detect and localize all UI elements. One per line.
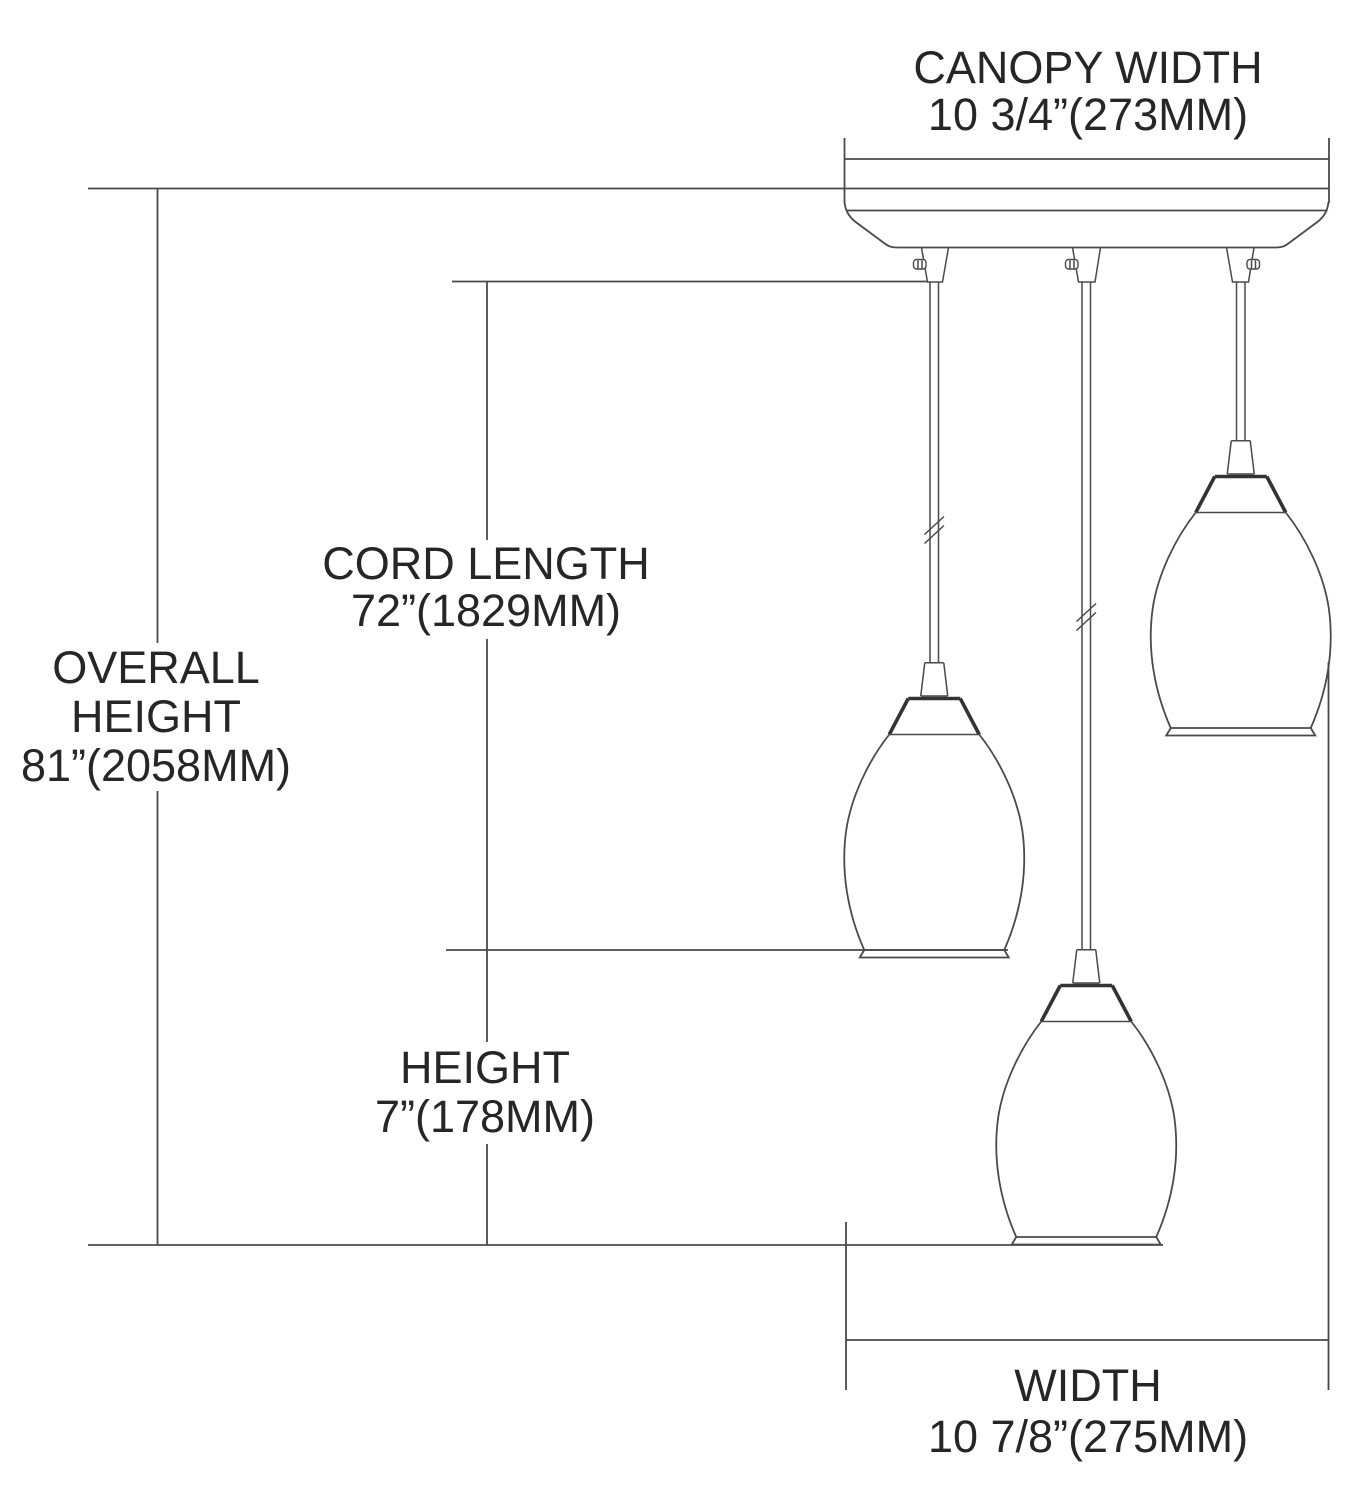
shade-height-title: HEIGHT: [375, 1043, 595, 1092]
cord-break-icon: [925, 517, 945, 544]
canopy-connector-left: [914, 248, 949, 283]
shade-center: [996, 950, 1176, 1245]
canopy-width-title: CANOPY WIDTH: [913, 44, 1262, 91]
cord-right: [1237, 282, 1246, 440]
width-value: 10 7/8”(275MM): [928, 1411, 1248, 1462]
dimension-diagram: CANOPY WIDTH 10 3/4”(273MM) OVERALL HEIG…: [0, 0, 1361, 1500]
shade-left: [844, 663, 1024, 958]
overall-height-value: 81”(2058MM): [21, 741, 291, 790]
shade-height-value: 7”(178MM): [375, 1092, 595, 1141]
cord-center: [1077, 282, 1097, 949]
width-label: WIDTH 10 7/8”(275MM): [922, 1360, 1254, 1462]
canopy-connector-right: [1227, 248, 1260, 283]
canopy-width-label: CANOPY WIDTH 10 3/4”(273MM): [907, 44, 1268, 138]
cord-length-label: CORD LENGTH 72”(1829MM): [316, 540, 656, 634]
canopy: [845, 138, 1330, 248]
overall-height-label: OVERALL HEIGHT 81”(2058MM): [15, 643, 297, 790]
overall-height-title-1: OVERALL: [21, 643, 291, 692]
set-screw-icon: [914, 260, 927, 270]
cord-length-value: 72”(1829MM): [322, 587, 650, 634]
cord-left: [925, 282, 945, 662]
set-screw-icon: [1247, 260, 1260, 270]
shade-height-label: HEIGHT 7”(178MM): [369, 1043, 601, 1141]
cord-length-title: CORD LENGTH: [322, 540, 650, 587]
set-screw-icon: [1066, 260, 1079, 270]
overall-height-title-2: HEIGHT: [21, 692, 291, 741]
width-title: WIDTH: [928, 1360, 1248, 1411]
canopy-width-value: 10 3/4”(273MM): [913, 91, 1262, 138]
cord-break-icon: [1077, 604, 1097, 631]
canopy-connector-center: [1066, 248, 1101, 283]
shade-right: [1151, 441, 1331, 736]
